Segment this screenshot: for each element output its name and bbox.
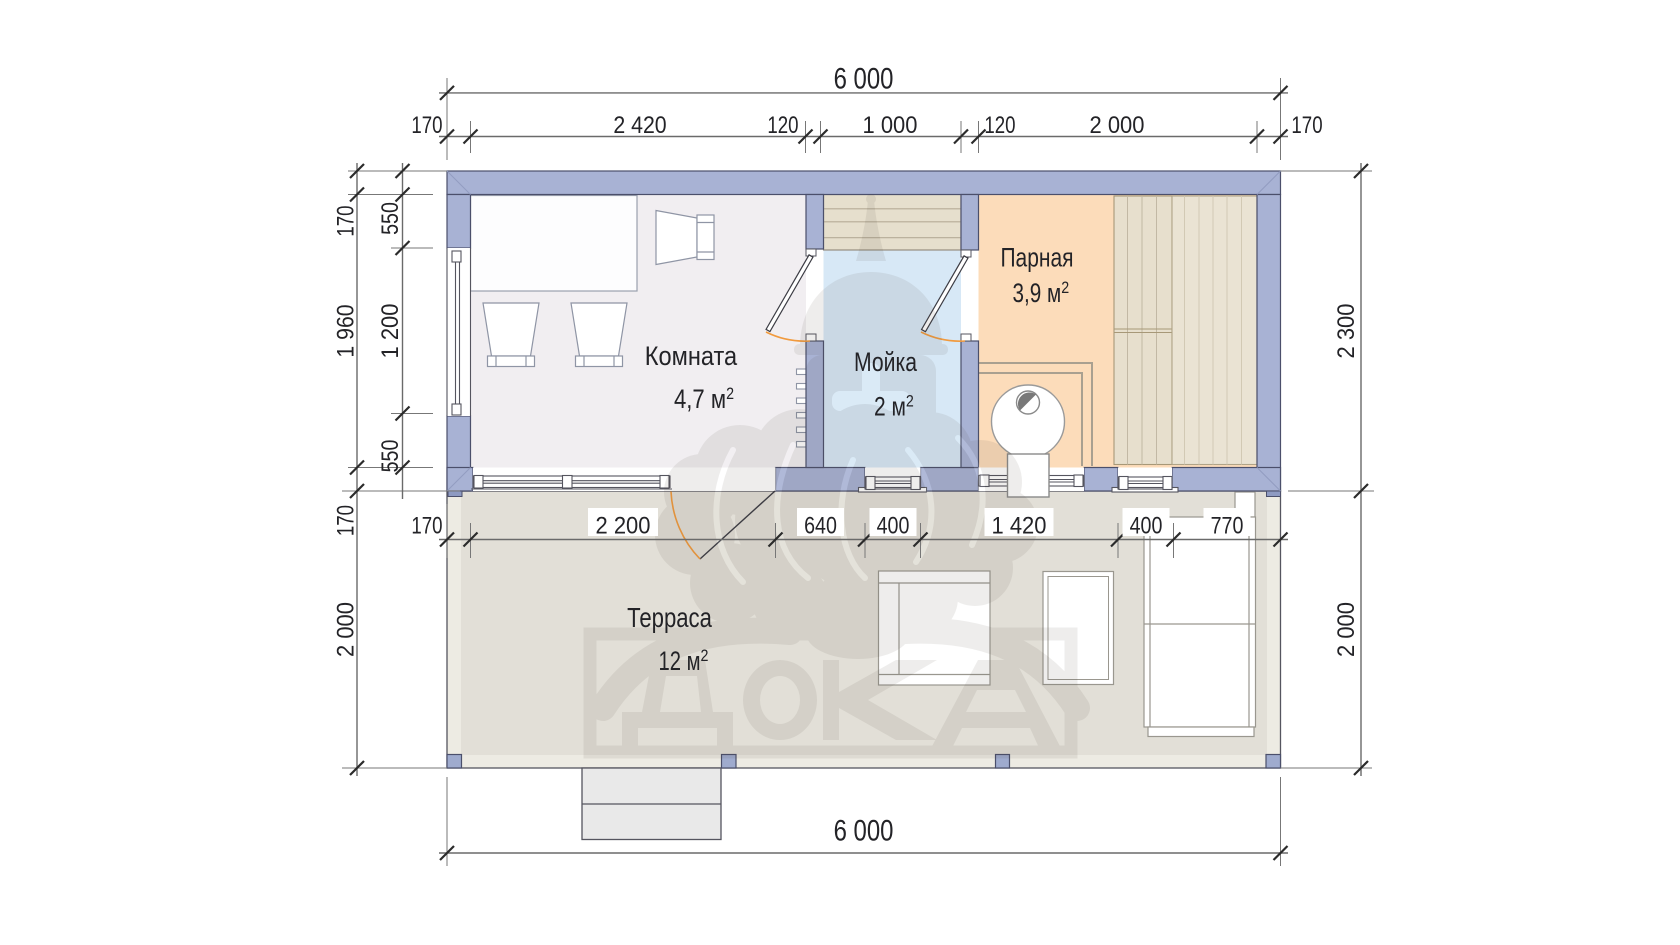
svg-text:6 000: 6 000 bbox=[834, 61, 894, 95]
svg-text:1 420: 1 420 bbox=[992, 512, 1047, 539]
svg-text:170: 170 bbox=[332, 205, 359, 236]
svg-text:2 300: 2 300 bbox=[1332, 304, 1359, 359]
svg-text:2 000: 2 000 bbox=[1090, 111, 1145, 138]
svg-text:400: 400 bbox=[877, 512, 910, 539]
svg-text:1 200: 1 200 bbox=[376, 304, 403, 359]
svg-text:170: 170 bbox=[411, 512, 442, 539]
svg-text:2 200: 2 200 bbox=[596, 512, 651, 539]
svg-text:6 000: 6 000 bbox=[834, 813, 894, 847]
svg-text:400: 400 bbox=[1130, 512, 1163, 539]
svg-text:640: 640 bbox=[804, 512, 837, 539]
svg-text:120: 120 bbox=[984, 111, 1015, 138]
svg-text:770: 770 bbox=[1211, 512, 1244, 539]
svg-text:2 000: 2 000 bbox=[1332, 602, 1359, 657]
svg-text:170: 170 bbox=[1291, 111, 1322, 138]
svg-text:2 420: 2 420 bbox=[613, 111, 666, 138]
svg-text:3,9 м2: 3,9 м2 bbox=[1012, 278, 1069, 308]
svg-text:Мойка: Мойка bbox=[854, 347, 917, 377]
svg-text:1 000: 1 000 bbox=[863, 111, 918, 138]
svg-text:2 000: 2 000 bbox=[332, 602, 359, 657]
svg-text:120: 120 bbox=[767, 111, 798, 138]
svg-text:170: 170 bbox=[411, 111, 442, 138]
svg-text:Терраса: Терраса bbox=[627, 603, 713, 633]
svg-text:550: 550 bbox=[376, 440, 403, 473]
svg-text:1 960: 1 960 bbox=[332, 304, 359, 357]
svg-text:Парная: Парная bbox=[1000, 242, 1073, 272]
svg-text:Комната: Комната bbox=[645, 341, 738, 371]
svg-text:170: 170 bbox=[332, 505, 359, 536]
svg-text:550: 550 bbox=[376, 202, 403, 235]
svg-text:4,7 м2: 4,7 м2 bbox=[674, 384, 734, 414]
